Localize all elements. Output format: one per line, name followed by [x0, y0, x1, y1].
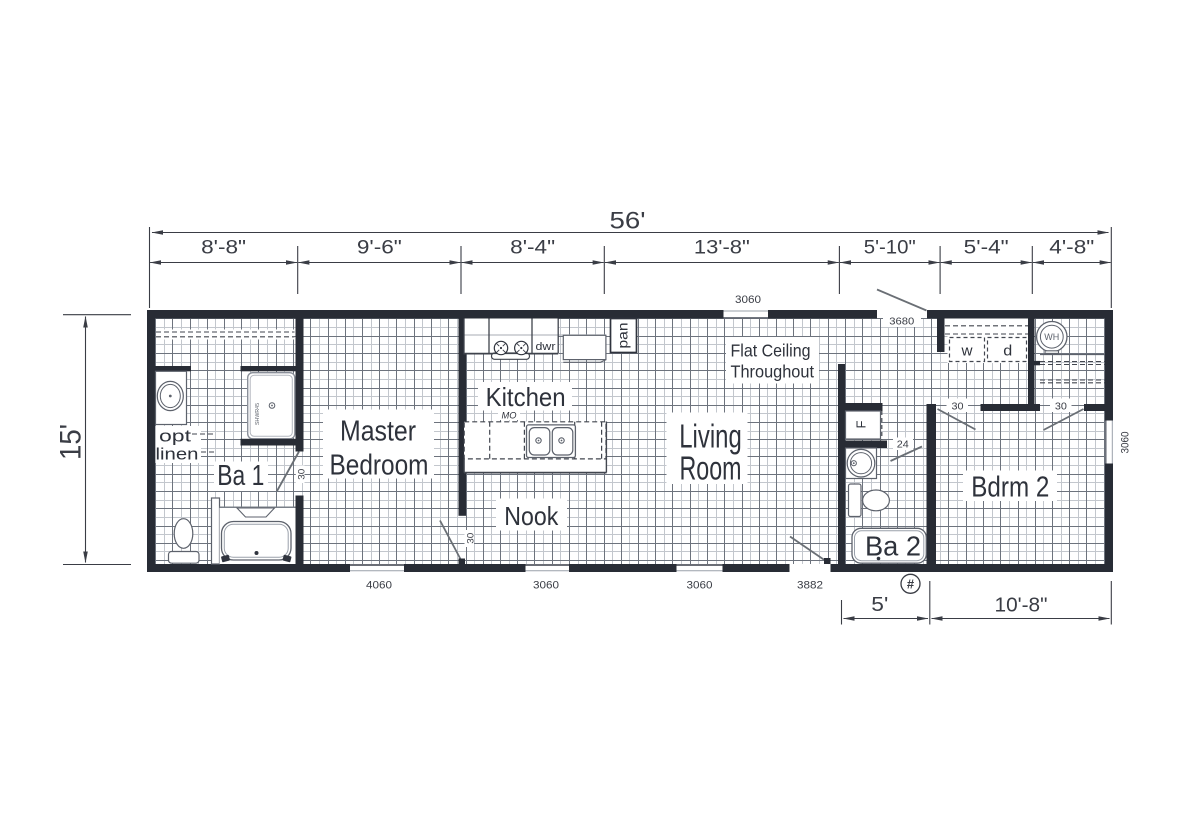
svg-text:Throughout: Throughout [731, 362, 815, 382]
svg-text:3060: 3060 [533, 580, 559, 592]
svg-text:5': 5' [871, 594, 888, 616]
svg-text:Nook: Nook [504, 501, 559, 531]
svg-text:linen: linen [156, 446, 199, 464]
svg-text:Ba 1: Ba 1 [217, 460, 264, 492]
svg-text:MO: MO [502, 411, 518, 422]
svg-text:Room: Room [680, 450, 742, 487]
svg-text:F: F [854, 420, 869, 428]
svg-text:3060: 3060 [687, 580, 713, 592]
svg-text:4060: 4060 [366, 580, 392, 592]
svg-text:30: 30 [296, 469, 307, 480]
svg-text:8'-4": 8'-4" [510, 238, 555, 259]
svg-text:Master: Master [340, 415, 416, 447]
svg-text:SHWR45: SHWR45 [255, 403, 261, 425]
svg-text:3060: 3060 [1119, 432, 1131, 454]
svg-text:9'-6": 9'-6" [357, 238, 402, 259]
svg-text:13'-8": 13'-8" [694, 238, 750, 259]
svg-text:Bedroom: Bedroom [330, 450, 429, 482]
svg-text:8'-8": 8'-8" [201, 238, 246, 259]
svg-text:30: 30 [1055, 402, 1067, 413]
svg-text:5'-4": 5'-4" [964, 238, 1009, 259]
svg-text:56': 56' [610, 208, 646, 235]
svg-text:3060: 3060 [735, 294, 761, 306]
svg-text:pan: pan [615, 323, 631, 349]
svg-text:d: d [1003, 343, 1012, 360]
svg-text:10'-8": 10'-8" [995, 595, 1048, 617]
svg-text:Flat Ceiling: Flat Ceiling [731, 341, 811, 361]
svg-text:3680: 3680 [889, 316, 914, 328]
svg-text:#: # [907, 577, 915, 592]
svg-text:opt: opt [159, 428, 192, 446]
svg-text:dwr: dwr [536, 341, 556, 353]
svg-text:4'-8": 4'-8" [1049, 238, 1094, 259]
svg-text:5'-10": 5'-10" [864, 238, 916, 259]
svg-text:30: 30 [465, 533, 476, 544]
svg-text:Bdrm 2: Bdrm 2 [971, 471, 1049, 503]
svg-text:Kitchen: Kitchen [486, 382, 566, 412]
svg-text:3882: 3882 [797, 580, 823, 592]
svg-text:24: 24 [897, 439, 909, 450]
svg-text:15': 15' [55, 424, 88, 460]
svg-text:w: w [960, 343, 972, 360]
svg-text:WH: WH [1044, 332, 1059, 343]
svg-text:Ba 2: Ba 2 [865, 531, 921, 562]
svg-text:30: 30 [952, 402, 964, 413]
